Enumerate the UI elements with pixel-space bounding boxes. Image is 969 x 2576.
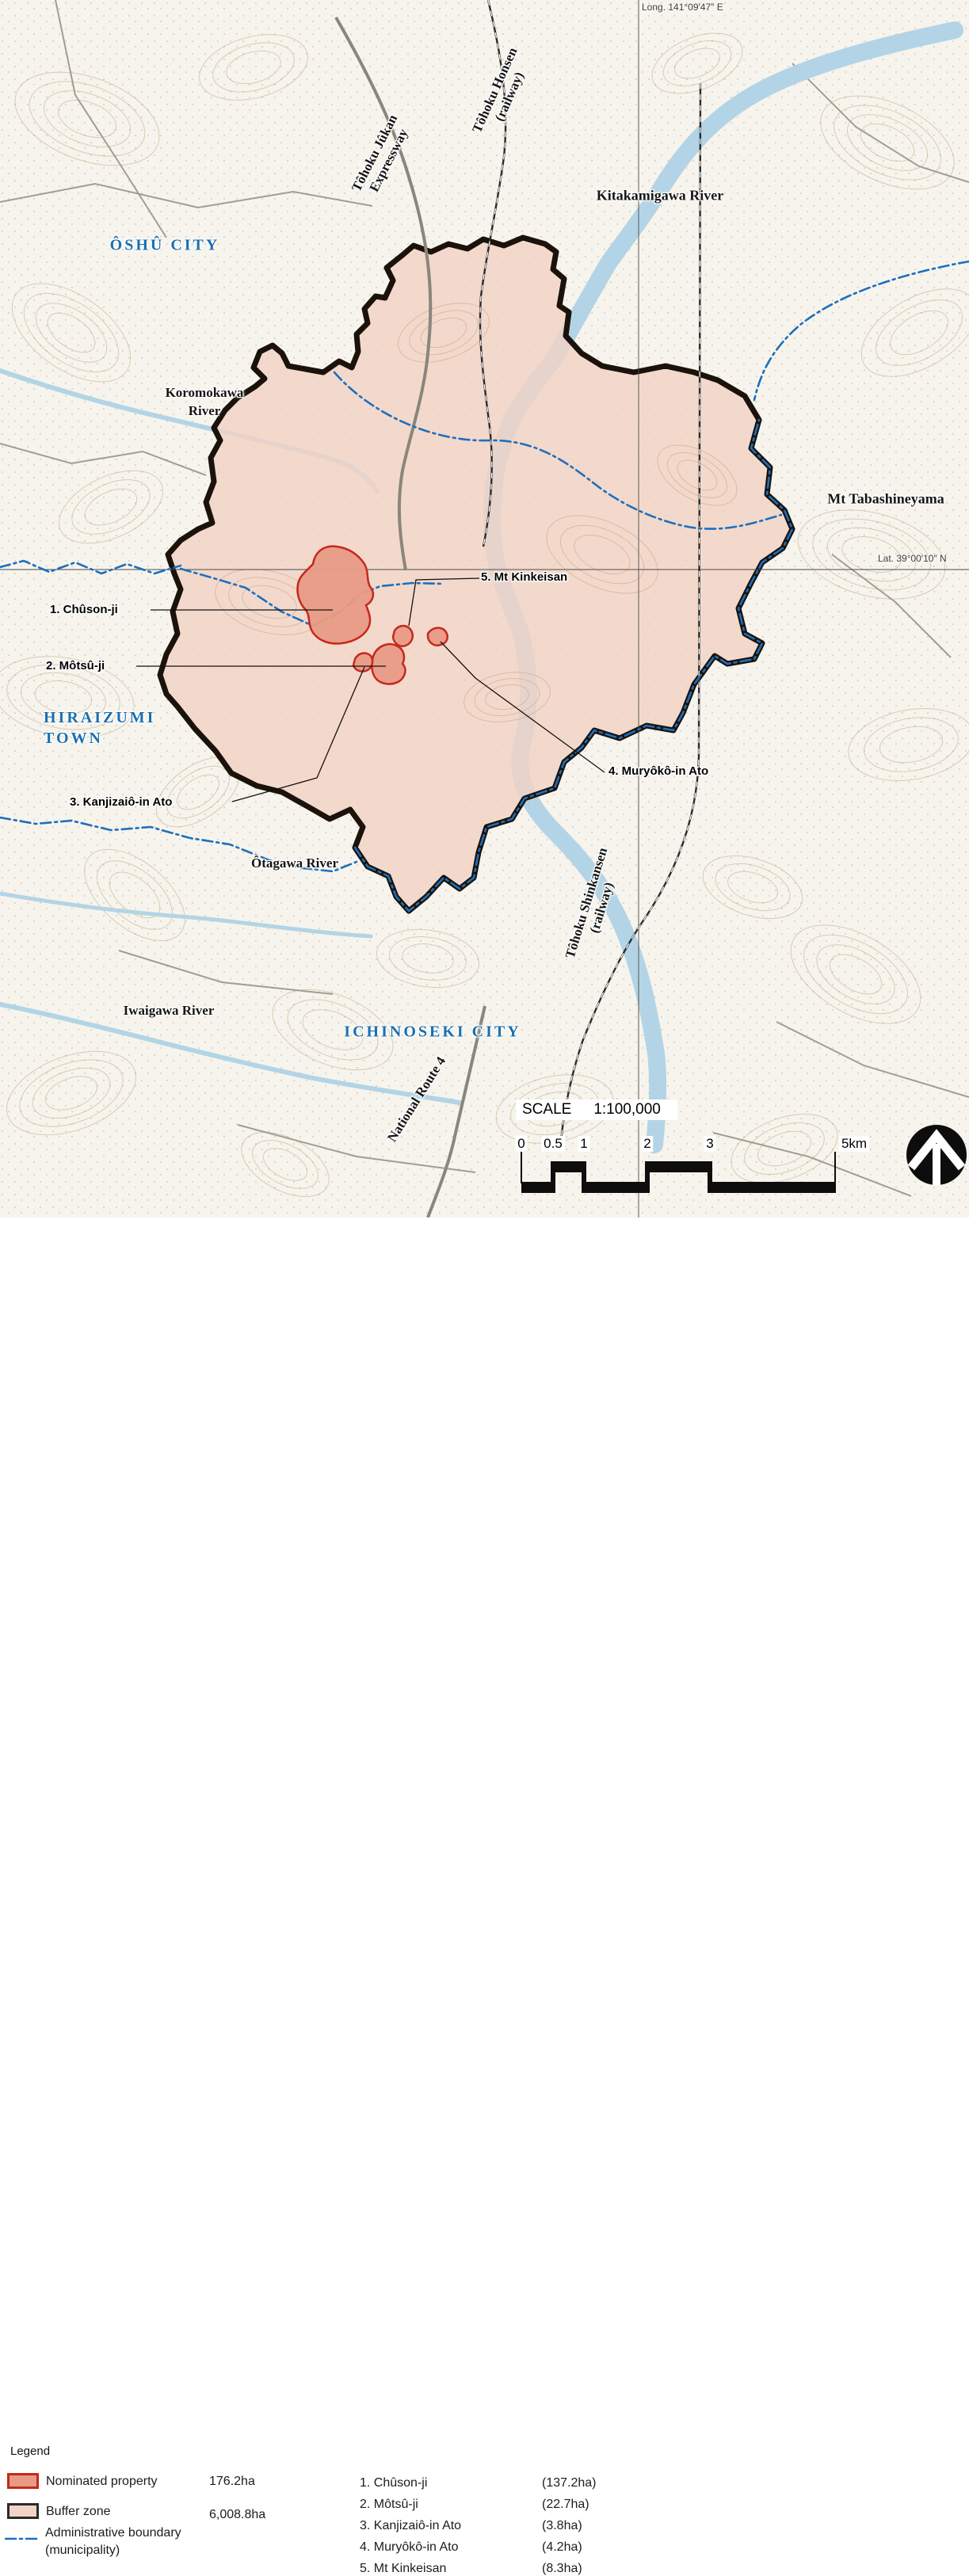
- buffer-zone-swatch: [7, 2503, 39, 2519]
- hiraizumi-town-label: HIRAIZUMI TOWN: [44, 707, 155, 749]
- property-mt-kinkeisan: [393, 626, 413, 646]
- scale-tick-5km: 5km: [839, 1136, 869, 1152]
- iwaigawa-river-label: Iwaigawa River: [124, 1003, 215, 1019]
- otagawa-river-label: Ôtagawa River: [251, 855, 338, 871]
- site-label-muryoko-in-ato: 4. Muryôkô-in Ato: [608, 764, 708, 778]
- property-muryoko-in-ato: [428, 628, 448, 646]
- scale-tick-3: 3: [704, 1136, 715, 1152]
- kitakamigawa-river-label: Kitakamigawa River: [597, 188, 723, 204]
- scale-tick-1: 1: [578, 1136, 589, 1152]
- scale-tick-2: 2: [641, 1136, 653, 1152]
- north-arrow-icon: [906, 1125, 967, 1185]
- legend-site-3-name: 3. Kanjizaiô-in Ato: [360, 2519, 461, 2533]
- legend-site-4-area: (4.2ha): [542, 2540, 582, 2555]
- topographic-map: Long. 141°09′47″ E Lat. 39°00′10″ N ÔSHÛ…: [0, 0, 969, 1218]
- oshu-city-label: ÔSHÛ CITY: [110, 237, 220, 255]
- ichinoseki-city-label: ICHINOSEKI CITY: [344, 1023, 521, 1042]
- nominated-property-swatch: [7, 2473, 39, 2489]
- page: { "map": { "grid": { "long_label": "Long…: [0, 0, 969, 1367]
- property-kanjizaio-in-ato: [353, 654, 372, 672]
- legend-nominated-label: Nominated property: [46, 2475, 158, 2489]
- legend-admin-label: Administrative boundary: [45, 2526, 181, 2540]
- legend-site-5-name: 5. Mt Kinkeisan: [360, 2562, 446, 2576]
- scale-tick-05: 0.5: [541, 1136, 565, 1152]
- administrative-boundary-swatch: [5, 2534, 41, 2544]
- site-label-mt-kinkeisan: 5. Mt Kinkeisan: [481, 570, 567, 584]
- longitude-label: Long. 141°09′47″ E: [642, 2, 723, 13]
- scale-word: SCALE: [522, 1101, 571, 1118]
- scale-title: SCALE 1:100,000: [516, 1099, 677, 1120]
- legend-site-2-name: 2. Môtsû-ji: [360, 2498, 418, 2512]
- legend-site-1-name: 1. Chûson-ji: [360, 2476, 427, 2490]
- legend-nominated-value: 176.2ha: [209, 2475, 255, 2489]
- legend-site-5-area: (8.3ha): [542, 2562, 582, 2576]
- legend-site-2-area: (22.7ha): [542, 2498, 589, 2512]
- site-label-kanjizaio-in-ato: 3. Kanjizaiô-in Ato: [70, 795, 172, 809]
- legend-title: Legend: [10, 2445, 50, 2458]
- legend-site-3-area: (3.8ha): [542, 2519, 582, 2533]
- latitude-label: Lat. 39°00′10″ N: [878, 553, 947, 564]
- legend-admin-label2: (municipality): [45, 2544, 120, 2558]
- mt-tabashineyama-label: Mt Tabashineyama: [827, 491, 944, 508]
- legend-buffer-label: Buffer zone: [46, 2505, 111, 2519]
- legend-site-1-area: (137.2ha): [542, 2476, 597, 2490]
- legend-buffer-value: 6,008.8ha: [209, 2508, 265, 2522]
- scale-tick-0: 0: [515, 1136, 527, 1152]
- scale-ratio: 1:100,000: [593, 1101, 661, 1118]
- site-label-chusonji: 1. Chûson-ji: [50, 603, 118, 616]
- koromokawa-river-label: Koromokawa River: [166, 383, 244, 420]
- legend-panel: Legend Nominated property 176.2ha Buffer…: [0, 1218, 969, 1367]
- site-label-motsuji: 2. Môtsû-ji: [46, 659, 105, 673]
- property-motsuji: [372, 644, 405, 684]
- legend-site-4-name: 4. Muryôkô-in Ato: [360, 2540, 459, 2555]
